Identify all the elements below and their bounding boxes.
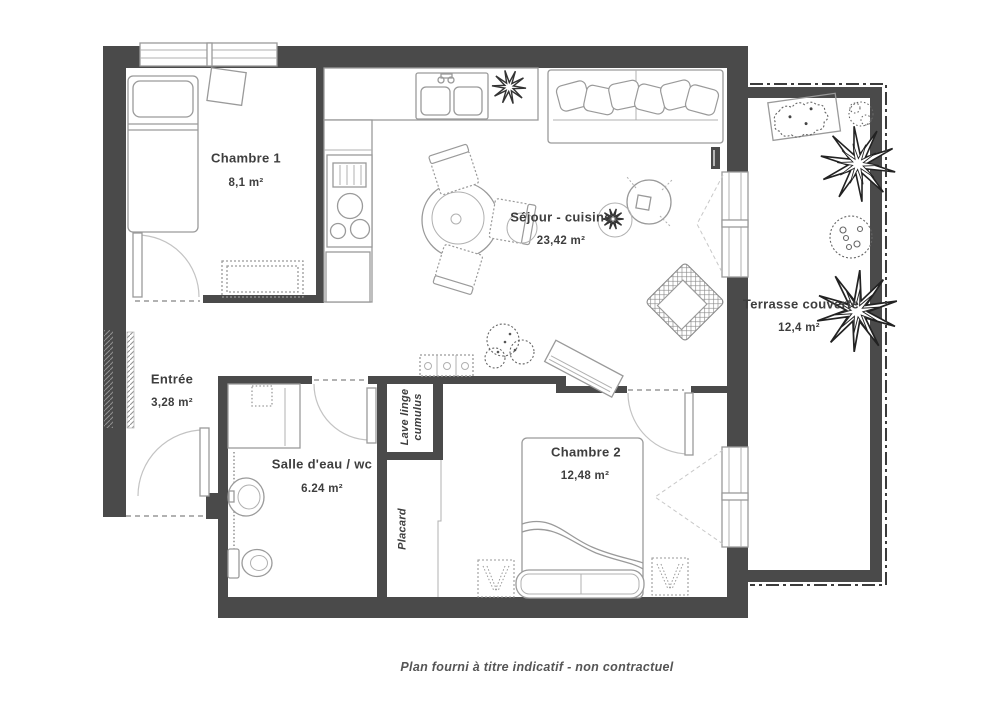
washbasin <box>228 478 264 516</box>
bed-chambre2 <box>516 438 644 598</box>
door-chambre1 <box>133 233 200 301</box>
dining-table <box>422 182 498 258</box>
room-label-sejour: Séjour - cuisine <box>510 210 612 225</box>
room-area-entree: 3,28 m² <box>151 397 193 409</box>
plan-caption: Plan fourni à titre indicatif - non cont… <box>400 660 673 674</box>
room-area-sejour: 23,42 m² <box>537 235 585 247</box>
radiator-entree <box>127 332 134 428</box>
planter-box <box>768 93 841 140</box>
console-chest <box>420 355 473 376</box>
bush-round <box>830 216 872 258</box>
door-entrance <box>126 428 209 516</box>
floor-plan: Chambre 1 8,1 m² Séjour - cuisine 23,42 … <box>0 0 1000 705</box>
room-label-chambre1: Chambre 1 <box>211 151 281 166</box>
room-label-placard: Placard <box>397 508 410 550</box>
room-label-salle-eau: Salle d'eau / wc <box>272 457 372 472</box>
room-label-entree: Entrée <box>151 372 193 387</box>
room-area-chambre1: 8,1 m² <box>228 177 263 189</box>
walls-layer <box>103 46 882 618</box>
shower <box>228 384 300 448</box>
sofa <box>548 70 723 143</box>
window-chambre1 <box>140 43 277 66</box>
room-area-salle-eau: 6.24 m² <box>301 483 343 495</box>
armchair <box>645 262 724 341</box>
door-bathroom <box>314 380 376 443</box>
room-area-terrasse: 12,4 m² <box>778 322 820 334</box>
room-label-chambre2: Chambre 2 <box>551 445 621 460</box>
window-chambre2 <box>655 447 748 547</box>
nightstand-left <box>478 560 514 597</box>
toilet <box>228 549 272 578</box>
kitchen-sink <box>416 73 488 119</box>
side-table-chambre1 <box>207 68 246 106</box>
bed-chambre1 <box>128 76 198 232</box>
kitchen-cabinet <box>326 252 370 302</box>
wall-unit <box>711 147 720 169</box>
plant-dotted-small <box>849 102 873 126</box>
wall-hatch <box>104 330 113 428</box>
lave-linge-line1: Lave linge <box>399 389 411 446</box>
room-label-lave-linge: Lave linge cumulus <box>399 389 425 446</box>
room-area-chambre2: 12,48 m² <box>561 470 609 482</box>
room-label-terrasse: Terrasse couverte <box>743 297 859 312</box>
window-bay-terrace <box>697 172 748 277</box>
floorplan-graphics <box>0 0 1000 705</box>
kitchen-stove <box>327 155 372 247</box>
plant-living <box>485 324 534 368</box>
lave-linge-line2: cumulus <box>412 393 424 440</box>
bench-chambre1 <box>222 261 303 297</box>
pouf-large <box>627 177 672 226</box>
placard-front-line <box>438 460 441 597</box>
agave-plant-top <box>813 121 902 207</box>
nightstand-right <box>652 558 688 595</box>
